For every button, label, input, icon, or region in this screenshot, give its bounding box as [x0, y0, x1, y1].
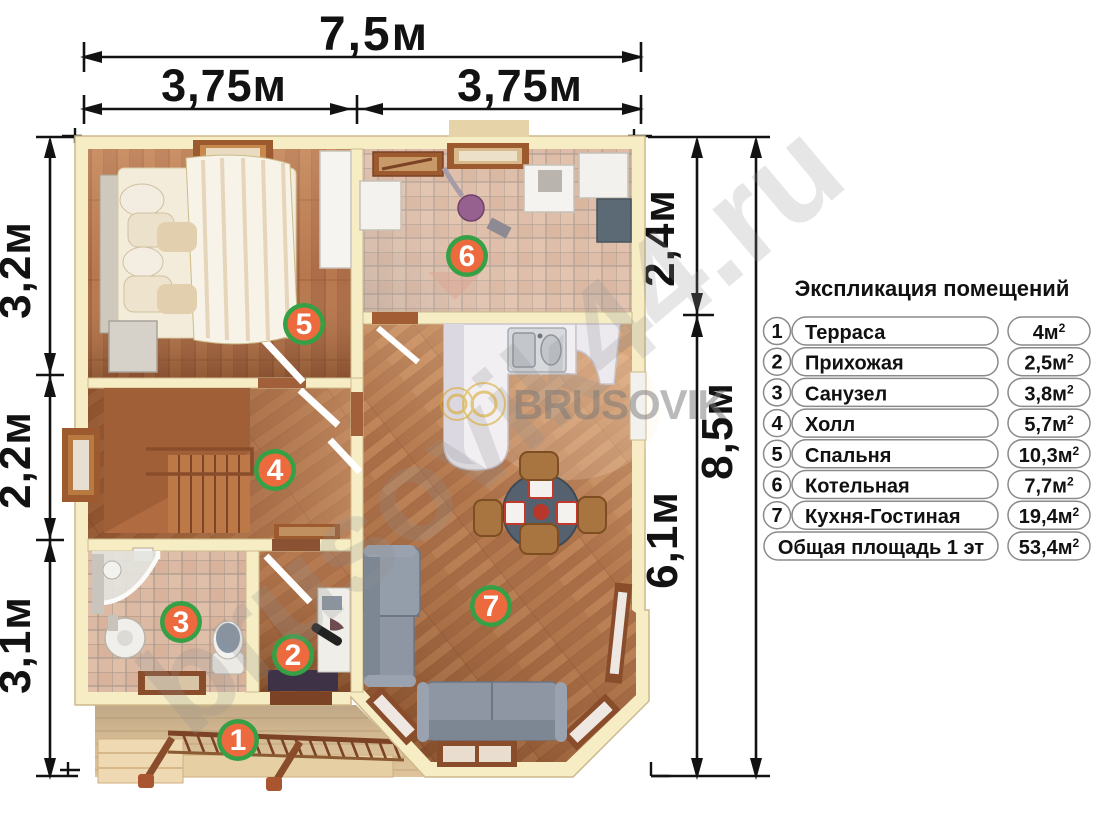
svg-text:3,75м: 3,75м [161, 60, 287, 111]
svg-text:3,1м: 3,1м [0, 596, 40, 694]
svg-text:3: 3 [771, 382, 782, 404]
svg-text:Общая площадь 1 эт: Общая площадь 1 эт [778, 537, 984, 559]
svg-text:19,4м2: 19,4м2 [1019, 505, 1080, 528]
svg-text:Терраса: Терраса [805, 322, 886, 344]
svg-text:10,3м2: 10,3м2 [1019, 444, 1080, 467]
svg-text:2,5м2: 2,5м2 [1024, 352, 1074, 375]
svg-text:53,4м2: 53,4м2 [1019, 536, 1080, 559]
svg-text:Спальня: Спальня [805, 445, 891, 467]
svg-text:7,7м2: 7,7м2 [1024, 475, 1074, 498]
svg-text:Котельная: Котельная [805, 476, 910, 498]
svg-text:3,2м: 3,2м [0, 221, 40, 319]
svg-text:4: 4 [267, 454, 284, 487]
svg-text:Экспликация помещений: Экспликация помещений [795, 276, 1070, 301]
svg-text:3,75м: 3,75м [457, 60, 583, 111]
svg-text:5: 5 [771, 444, 782, 466]
svg-text:Кухня-Гостиная: Кухня-Гостиная [805, 506, 961, 528]
svg-text:4: 4 [771, 413, 783, 435]
svg-text:2: 2 [771, 352, 782, 374]
svg-text:Холл: Холл [805, 414, 855, 436]
svg-text:6: 6 [459, 240, 476, 273]
svg-text:7: 7 [771, 505, 782, 527]
svg-text:5: 5 [296, 308, 313, 341]
svg-text:5,7м2: 5,7м2 [1024, 413, 1074, 436]
svg-text:1: 1 [771, 321, 782, 343]
svg-text:BRUSOVIK: BRUSOVIK [513, 381, 727, 428]
svg-text:Прихожая: Прихожая [805, 353, 904, 375]
svg-text:6: 6 [771, 475, 782, 497]
svg-text:7,5м: 7,5м [319, 8, 429, 61]
svg-text:Санузел: Санузел [805, 383, 887, 405]
svg-text:3,8м2: 3,8м2 [1024, 382, 1074, 405]
svg-text:7: 7 [483, 590, 500, 623]
svg-text:2,2м: 2,2м [0, 411, 40, 509]
